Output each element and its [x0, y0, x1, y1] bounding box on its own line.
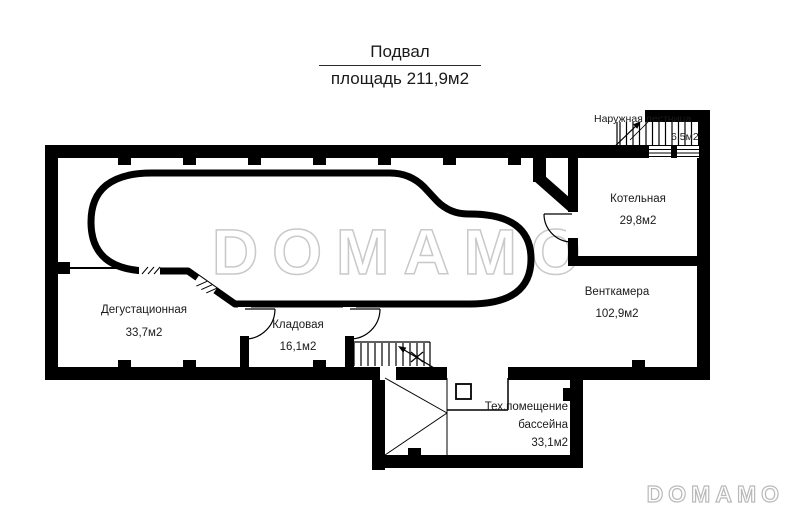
- interior-staircase: [345, 342, 430, 367]
- wall-opening-stair: [380, 367, 396, 380]
- wall-pilaster: [58, 262, 70, 274]
- wall-pilasters-top: [118, 158, 521, 165]
- shaft-room-diagonals: [385, 378, 447, 455]
- room-label-tekh-pomeshchenie-basseyna: Тех.помещение бассейна: [450, 398, 568, 434]
- watermark-corner: DOMAMO: [647, 483, 784, 506]
- room-label-ventkamera: Венткамера: [556, 283, 678, 301]
- room-label-kotelnaya: Котельная: [578, 190, 698, 208]
- kladovaya-walls: [240, 303, 354, 367]
- room-area-kotelnaya: 29,8м2: [578, 212, 698, 230]
- vestibule-walls: [533, 158, 573, 208]
- pool-window-gap: [139, 266, 160, 276]
- room-area-degustatsionnaya: 33,7м2: [84, 324, 204, 342]
- pool-outline: [91, 173, 531, 304]
- room-area-kladovaya: 16,1м2: [246, 338, 350, 356]
- room-label-kladovaya: Кладовая: [246, 316, 350, 334]
- room-area-tekh-pomeshchenie-basseyna: 33,1м2: [450, 434, 568, 452]
- room-label-degustatsionnaya: Дегустационная: [84, 301, 204, 319]
- wall-opening-tekh: [447, 367, 508, 380]
- vent-shaft-square: [456, 384, 471, 399]
- floor-plan-drawing: [0, 0, 800, 518]
- room-area-naruzhnaya-lestnitsa: 6,5м2: [671, 128, 699, 146]
- floor-plan-page: Подвал площадь 211,9м2 DOMAMO: [0, 0, 800, 518]
- room-area-ventkamera: 102,9м2: [556, 305, 678, 323]
- room-label-naruzhnaya-lestnitsa: Наружная лестница: [594, 110, 691, 128]
